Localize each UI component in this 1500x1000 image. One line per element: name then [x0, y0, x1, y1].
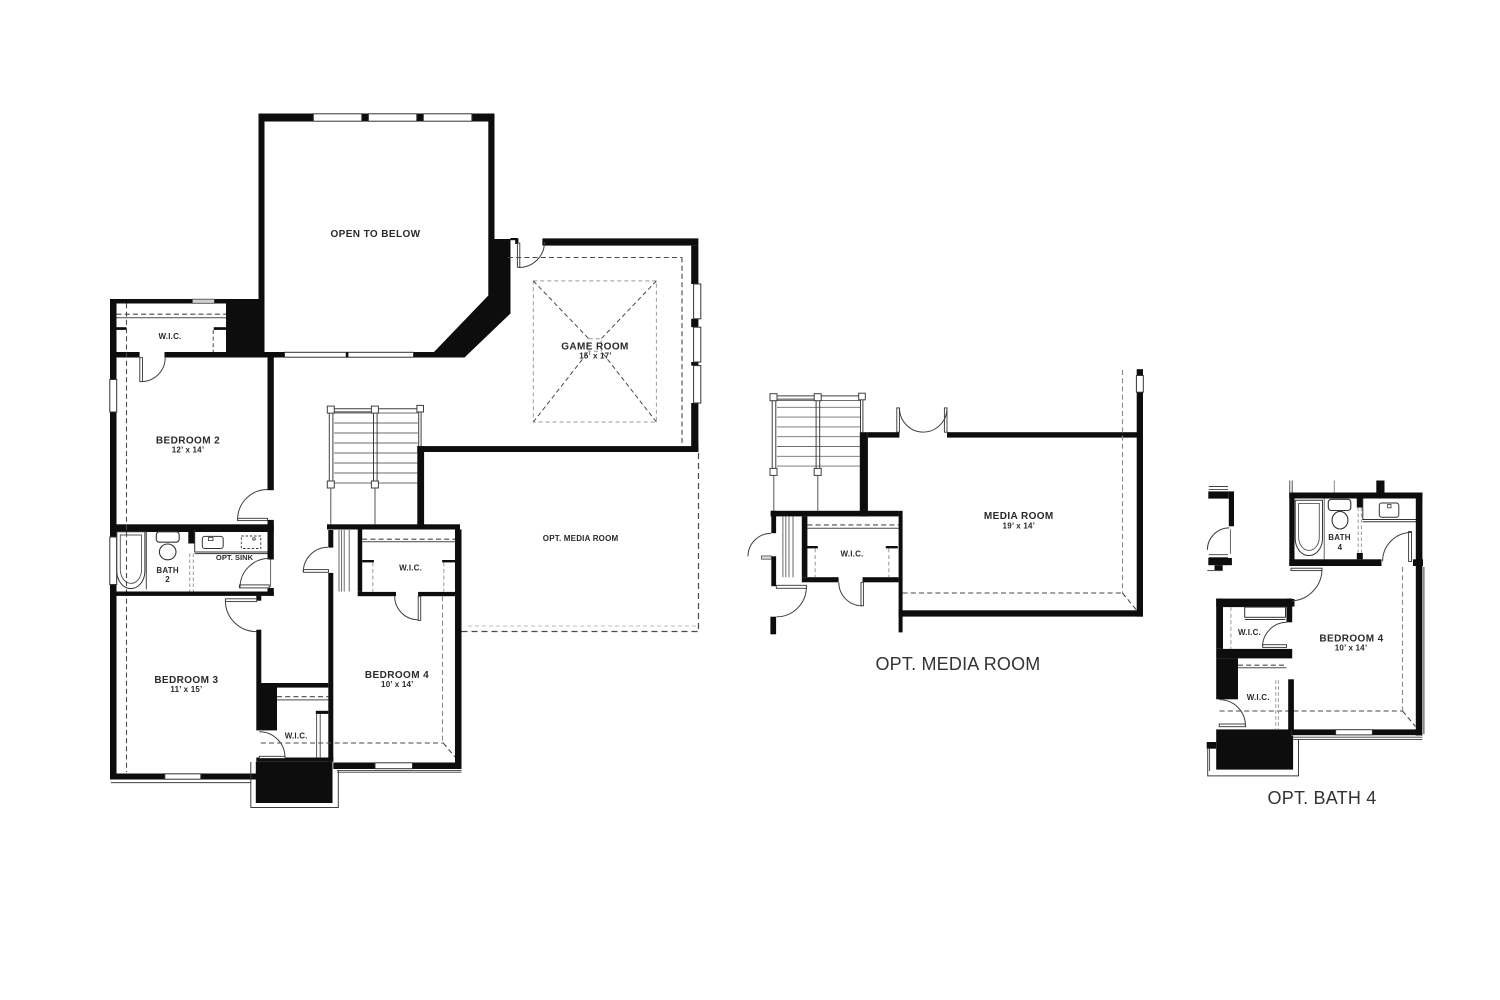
svg-text:OPT. SINK: OPT. SINK — [216, 553, 254, 562]
svg-text:MEDIA ROOM: MEDIA ROOM — [984, 511, 1054, 522]
svg-text:BATH: BATH — [156, 566, 178, 575]
svg-text:15’ x 17’: 15’ x 17’ — [579, 352, 612, 361]
svg-text:BATH: BATH — [1328, 533, 1350, 542]
svg-text:4: 4 — [1338, 543, 1343, 552]
svg-text:OPT. BATH 4: OPT. BATH 4 — [1268, 788, 1377, 808]
svg-text:W.I.C.: W.I.C. — [1247, 693, 1270, 702]
svg-text:W.I.C.: W.I.C. — [285, 732, 308, 741]
svg-text:OPT. MEDIA ROOM: OPT. MEDIA ROOM — [543, 534, 619, 543]
svg-text:10’ x 14’: 10’ x 14’ — [1335, 643, 1368, 652]
svg-text:19’ x 14’: 19’ x 14’ — [1003, 521, 1036, 530]
svg-text:10’ x 14’: 10’ x 14’ — [381, 680, 414, 689]
svg-text:12’ x 14’: 12’ x 14’ — [172, 446, 205, 455]
svg-text:11’ x 15’: 11’ x 15’ — [170, 685, 202, 694]
svg-text:W.I.C.: W.I.C. — [399, 564, 422, 573]
svg-text:2: 2 — [165, 575, 170, 584]
svg-text:OPEN TO BELOW: OPEN TO BELOW — [330, 229, 420, 240]
svg-text:OPT. MEDIA ROOM: OPT. MEDIA ROOM — [875, 654, 1040, 674]
svg-text:W.I.C.: W.I.C. — [841, 549, 864, 558]
svg-text:W.I.C.: W.I.C. — [1238, 628, 1261, 637]
svg-text:W.I.C.: W.I.C. — [159, 332, 182, 341]
